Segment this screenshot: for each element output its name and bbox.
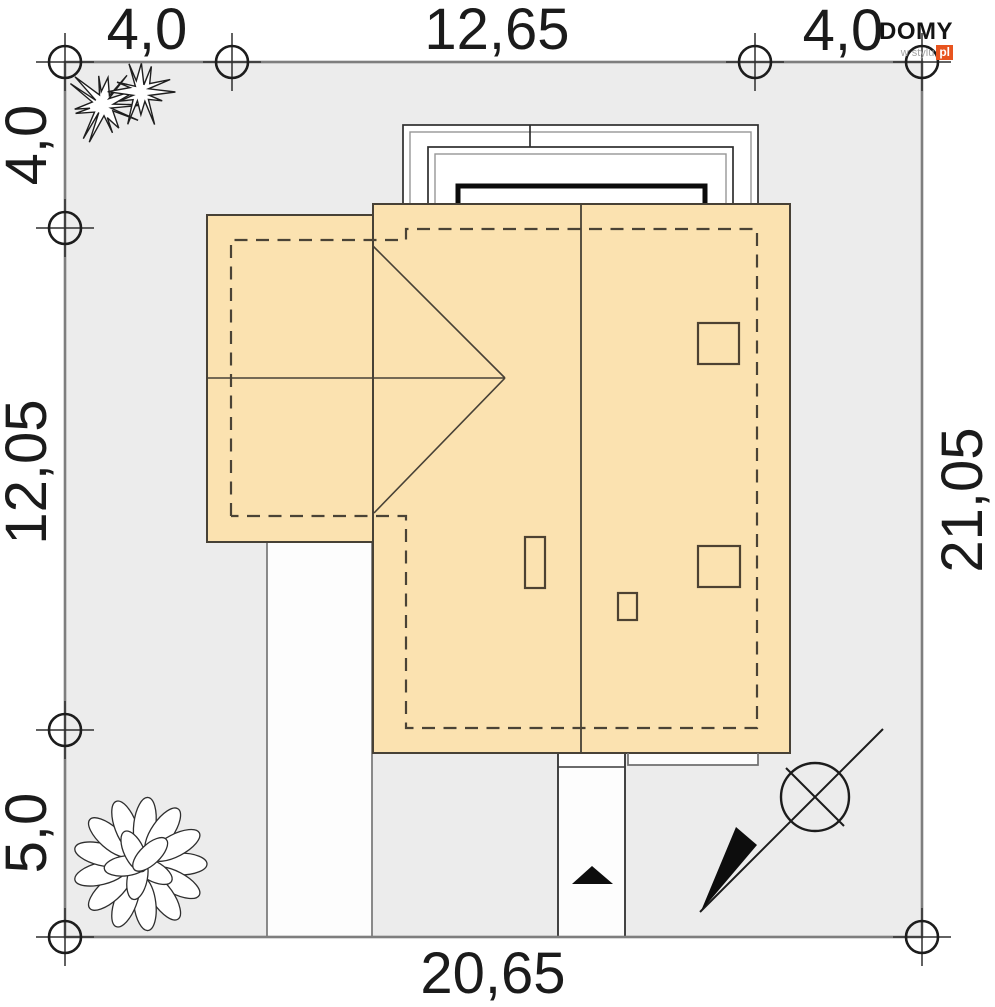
driveway [558,754,625,937]
brand-tld-badge: pl [936,45,953,60]
dim-top-right: 4,0 [803,2,884,60]
terrace [403,125,758,205]
dim-right: 21,05 [934,427,992,572]
chimney [525,537,545,588]
dim-bottom: 20,65 [420,945,565,1003]
entry-step [628,753,758,765]
brand-logo: DOMY w stylu pl [879,20,953,60]
dim-left-bottom: 5,0 [0,793,56,874]
brand-tagline: w stylu [901,47,935,59]
dim-left-middle: 12,05 [0,399,56,544]
dim-top-center: 12,65 [424,1,569,59]
dim-left-top: 4,0 [0,105,56,186]
site-plan-drawing [0,0,995,1007]
site-plan: 4,0 12,65 4,0 4,0 12,05 5,0 21,05 20,65 … [0,0,995,1007]
chimney [698,323,739,364]
dim-top-left: 4,0 [107,1,188,59]
chimney [618,593,637,620]
chimney [698,546,740,587]
brand-name: DOMY [879,20,953,44]
walkway [267,542,372,937]
